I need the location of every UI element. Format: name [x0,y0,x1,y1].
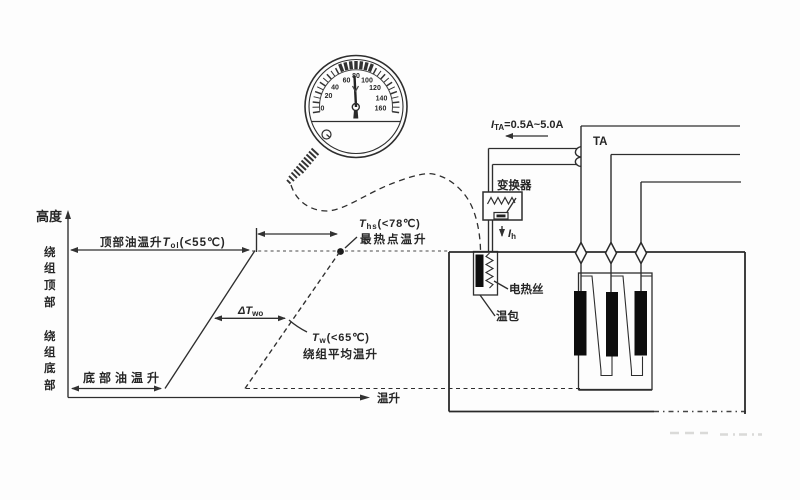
svg-text:组: 组 [44,345,56,359]
svg-text:160: 160 [375,106,387,113]
svg-text:最热点温升: 最热点温升 [360,232,428,246]
svg-text:绕: 绕 [44,245,56,259]
svg-text:140: 140 [376,96,388,103]
svg-text:部: 部 [44,378,56,392]
svg-text:80: 80 [352,73,360,80]
svg-text:底部油温升: 底部油温升 [83,370,163,385]
svg-text:顶: 顶 [44,278,56,292]
svg-text:TA: TA [593,136,607,148]
svg-text:绕组平均温升: 绕组平均温升 [303,347,378,361]
svg-text:Ih: Ih [508,228,516,241]
svg-text:部: 部 [44,295,56,309]
svg-text:ΔTwo: ΔTwo [237,305,263,318]
svg-text:40: 40 [331,85,339,92]
svg-text:底: 底 [44,361,56,375]
svg-text:Ths(<78℃): Ths(<78℃) [359,218,421,231]
svg-text:100: 100 [361,78,373,85]
svg-text:120: 120 [369,85,381,92]
svg-text:高度: 高度 [36,209,63,224]
svg-text:ITA=0.5A~5.0A: ITA=0.5A~5.0A [491,119,564,132]
svg-text:绕: 绕 [44,329,56,343]
svg-text:变换器: 变换器 [497,178,532,192]
svg-text:Tw(<65℃): Tw(<65℃) [312,332,370,345]
svg-text:组: 组 [44,261,56,275]
svg-text:温升: 温升 [377,391,400,405]
svg-text:20: 20 [325,93,333,100]
svg-text:0: 0 [321,106,325,113]
svg-text:温包: 温包 [496,309,519,323]
svg-text:顶部油温升Tol(<55℃): 顶部油温升Tol(<55℃) [100,235,226,250]
svg-text:60: 60 [343,78,351,85]
svg-text:电热丝: 电热丝 [509,282,544,296]
